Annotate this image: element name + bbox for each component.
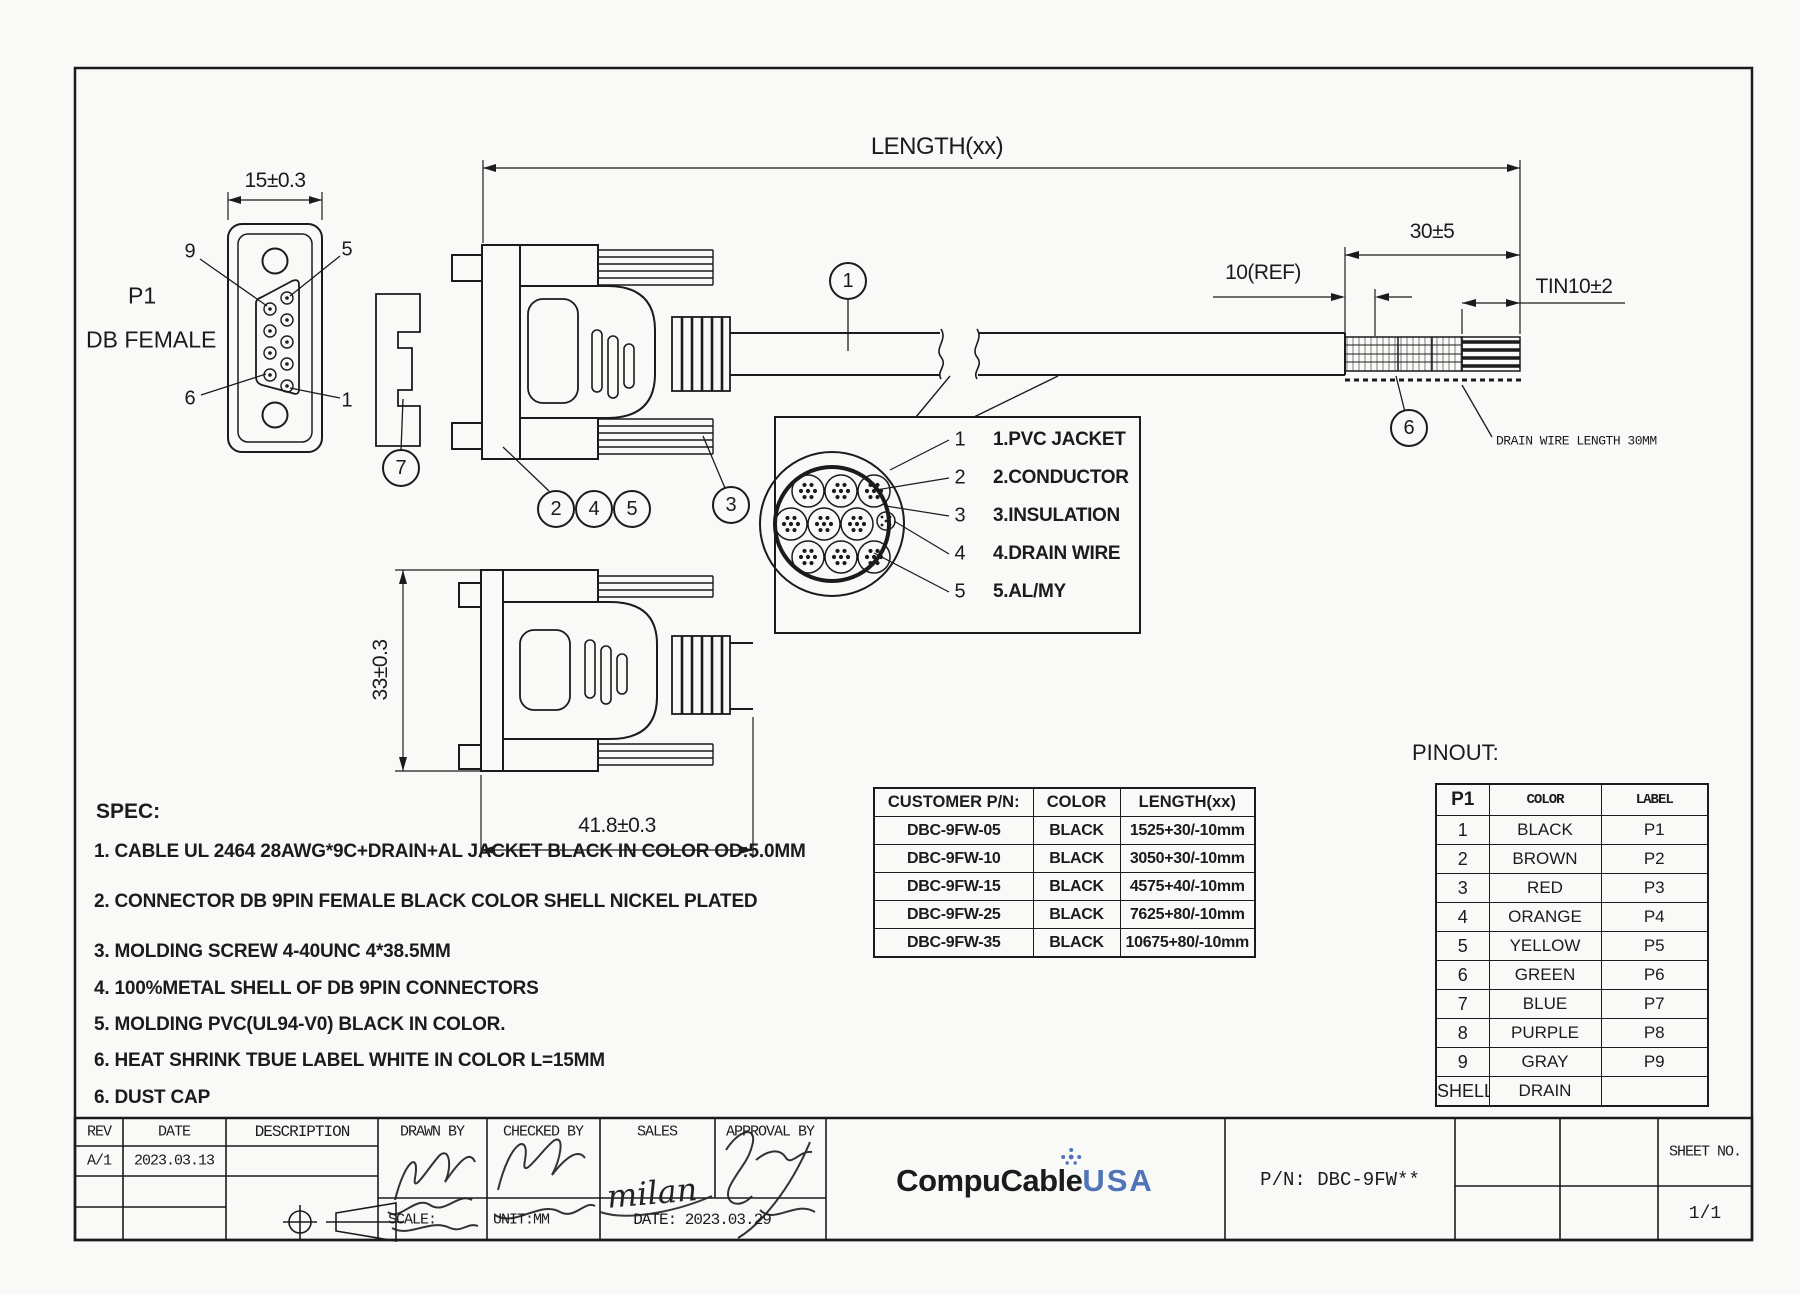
spec-item-3: 3. MOLDING SCREW 4-40UNC 4*38.5MM (94, 941, 451, 963)
table-row: 5YELLOWP5 (1436, 932, 1708, 961)
drawing-page: 15±0.3 P1 DB FEMALE 9 5 6 1 LENGTH(xx) 3… (0, 0, 1800, 1294)
dim-connector-height: 33±0.3 (369, 639, 393, 700)
table-row: DBC-9FW-15 BLACK 4575+40/-10mm (874, 873, 1255, 901)
customer-header-pn: CUSTOMER P/N: (874, 788, 1033, 817)
callout-1: 1 (829, 262, 867, 300)
pin-label-6: 6 (184, 388, 195, 411)
spec-item-7: 6. DUST CAP (94, 1087, 210, 1109)
pinout-cell: P6 (1601, 961, 1708, 990)
pinout-cell: GRAY (1489, 1048, 1601, 1077)
projection-symbol-icon (283, 1203, 404, 1241)
titleblock-description-header: DESCRIPTION (255, 1123, 350, 1141)
table-row: 4ORANGEP4 (1436, 903, 1708, 932)
xsec-label-3: 3.INSULATION (993, 505, 1120, 527)
customer-cell: 1525+30/-10mm (1120, 817, 1255, 845)
dim-length: LENGTH(xx) (871, 133, 1003, 161)
customer-cell: BLACK (1033, 901, 1120, 929)
pinout-cell: RED (1489, 874, 1601, 903)
table-row: 1BLACKP1 (1436, 816, 1708, 845)
customer-cell: DBC-9FW-25 (874, 901, 1033, 929)
pinout-header-row: P1 COLOR LABEL (1436, 784, 1708, 816)
dim-tin: TIN10±2 (1536, 275, 1613, 299)
sales-signature: milan (605, 1170, 698, 1216)
dim-connector-width: 15±0.3 (244, 169, 305, 193)
callout-2: 2 (537, 490, 575, 528)
pinout-cell: YELLOW (1489, 932, 1601, 961)
spec-item-1: 1. CABLE UL 2464 28AWG*9C+DRAIN+AL JACKE… (94, 841, 806, 863)
titleblock-drawnby-header: DRAWN BY (400, 1124, 464, 1141)
table-row: 3REDP3 (1436, 874, 1708, 903)
pinout-cell: P8 (1601, 1019, 1708, 1048)
customer-cell: 7625+80/-10mm (1120, 901, 1255, 929)
callout-3: 3 (712, 486, 750, 524)
pinout-cell: BLUE (1489, 990, 1601, 1019)
table-row: 9GRAYP9 (1436, 1048, 1708, 1077)
xsec-num-3: 3 (954, 505, 965, 528)
front-view-type-label: DB FEMALE (86, 327, 216, 354)
pinout-cell: PURPLE (1489, 1019, 1601, 1048)
pinout-cell: DRAIN (1489, 1077, 1601, 1107)
company-logo-text: CompuCable (896, 1163, 1082, 1198)
customer-cell: DBC-9FW-35 (874, 929, 1033, 958)
titleblock-rev-date: 2023.03.13 (134, 1153, 214, 1170)
pinout-cell: 3 (1436, 874, 1489, 903)
table-row: 8PURPLEP8 (1436, 1019, 1708, 1048)
spec-item-5: 5. MOLDING PVC(UL94-V0) BLACK IN COLOR. (94, 1014, 505, 1036)
pinout-cell: BROWN (1489, 845, 1601, 874)
pinout-cell: P9 (1601, 1048, 1708, 1077)
xsec-num-4: 4 (954, 543, 965, 566)
table-row: 7BLUEP7 (1436, 990, 1708, 1019)
pinout-cell: ORANGE (1489, 903, 1601, 932)
dim-ref: 10(REF) (1225, 261, 1301, 285)
table-row: DBC-9FW-05 BLACK 1525+30/-10mm (874, 817, 1255, 845)
checked-by-signature (495, 1140, 595, 1219)
pin-label-1: 1 (341, 390, 352, 413)
dim-body-length: 41.8±0.3 (578, 814, 656, 838)
xsec-label-2: 2.CONDUCTOR (993, 467, 1129, 489)
customer-cell: DBC-9FW-05 (874, 817, 1033, 845)
pinout-cell: P4 (1601, 903, 1708, 932)
pinout-cell: 8 (1436, 1019, 1489, 1048)
xsec-num-5: 5 (954, 581, 965, 604)
spec-item-4: 4. 100%METAL SHELL OF DB 9PIN CONNECTORS (94, 978, 539, 1000)
company-logo-suffix: USA (1082, 1163, 1153, 1198)
pinout-cell: P2 (1601, 845, 1708, 874)
customer-cell: DBC-9FW-15 (874, 873, 1033, 901)
pinout-cell: BLACK (1489, 816, 1601, 845)
pin-label-9: 9 (184, 241, 195, 264)
pinout-cell: 4 (1436, 903, 1489, 932)
titleblock-date-value: DATE: 2023.03.29 (633, 1211, 771, 1229)
xsec-label-4: 4.DRAIN WIRE (993, 543, 1120, 565)
customer-pn-table: CUSTOMER P/N: COLOR LENGTH(xx) DBC-9FW-0… (873, 787, 1256, 958)
table-row: DBC-9FW-25 BLACK 7625+80/-10mm (874, 901, 1255, 929)
callout-5: 5 (613, 490, 651, 528)
pinout-header-label: LABEL (1601, 784, 1708, 816)
customer-header-length: LENGTH(xx) (1120, 788, 1255, 817)
titleblock-rev-value: A/1 (87, 1153, 111, 1170)
customer-cell: 3050+30/-10mm (1120, 845, 1255, 873)
customer-cell: 10675+80/-10mm (1120, 929, 1255, 958)
pinout-cell: 2 (1436, 845, 1489, 874)
titleblock-approval-header: APPROVAL BY (726, 1124, 814, 1141)
pinout-cell: 6 (1436, 961, 1489, 990)
front-view-port-label: P1 (128, 283, 156, 310)
sheet-no-value: 1/1 (1689, 1204, 1721, 1224)
table-row: 2BROWNP2 (1436, 845, 1708, 874)
pinout-cell (1601, 1077, 1708, 1107)
pinout-header-p1: P1 (1436, 784, 1489, 816)
titleblock-scale-label: SCALE: (388, 1212, 436, 1229)
dim-strip: 30±5 (1410, 220, 1455, 244)
titleblock-sales-header: SALES (637, 1124, 677, 1141)
pinout-cell: 1 (1436, 816, 1489, 845)
customer-header-color: COLOR (1033, 788, 1120, 817)
pinout-cell: P7 (1601, 990, 1708, 1019)
customer-cell: BLACK (1033, 845, 1120, 873)
spec-title: SPEC: (96, 800, 160, 824)
pinout-cell: P5 (1601, 932, 1708, 961)
pinout-cell: 5 (1436, 932, 1489, 961)
titleblock-checkedby-header: CHECKED BY (503, 1124, 583, 1141)
pinout-header-color: COLOR (1489, 784, 1601, 816)
pin-label-5: 5 (341, 239, 352, 262)
pinout-table: P1 COLOR LABEL 1BLACKP1 2BROWNP2 3REDP3 … (1435, 783, 1709, 1107)
titleblock-rev-header: REV (87, 1124, 111, 1141)
customer-cell: 4575+40/-10mm (1120, 873, 1255, 901)
pinout-cell: P1 (1601, 816, 1708, 845)
customer-header-row: CUSTOMER P/N: COLOR LENGTH(xx) (874, 788, 1255, 817)
table-row: DBC-9FW-35 BLACK 10675+80/-10mm (874, 929, 1255, 958)
pinout-cell: GREEN (1489, 961, 1601, 990)
xsec-num-1: 1 (954, 429, 965, 452)
titleblock-unit-label: UNIT:MM (493, 1212, 549, 1229)
xsec-label-1: 1.PVC JACKET (993, 429, 1126, 451)
company-logo: CompuCableUSA (896, 1163, 1154, 1199)
pinout-cell: SHELL (1436, 1077, 1489, 1107)
part-number: P/N: DBC-9FW** (1260, 1169, 1420, 1191)
pinout-cell: P3 (1601, 874, 1708, 903)
sheet-no-header: SHEET NO. (1669, 1144, 1741, 1161)
table-row: 6GREENP6 (1436, 961, 1708, 990)
pinout-cell: 9 (1436, 1048, 1489, 1077)
spec-item-6: 6. HEAT SHRINK TBUE LABEL WHITE IN COLOR… (94, 1050, 605, 1072)
xsec-num-2: 2 (954, 467, 965, 490)
logo-dots-icon (1054, 1147, 1088, 1167)
pinout-cell: 7 (1436, 990, 1489, 1019)
customer-cell: DBC-9FW-10 (874, 845, 1033, 873)
callout-6: 6 (1390, 409, 1428, 447)
callout-4: 4 (575, 490, 613, 528)
callout-7: 7 (382, 449, 420, 487)
customer-cell: BLACK (1033, 929, 1120, 958)
drain-wire-note: DRAIN WIRE LENGTH 30MM (1496, 434, 1657, 449)
xsec-label-5: 5.AL/MY (993, 581, 1066, 603)
table-row: SHELLDRAIN (1436, 1077, 1708, 1107)
customer-cell: BLACK (1033, 873, 1120, 901)
pinout-title: PINOUT: (1412, 740, 1499, 766)
table-row: DBC-9FW-10 BLACK 3050+30/-10mm (874, 845, 1255, 873)
customer-cell: BLACK (1033, 817, 1120, 845)
titleblock-date-header: DATE (158, 1124, 190, 1141)
spec-item-2: 2. CONNECTOR DB 9PIN FEMALE BLACK COLOR … (94, 891, 757, 913)
